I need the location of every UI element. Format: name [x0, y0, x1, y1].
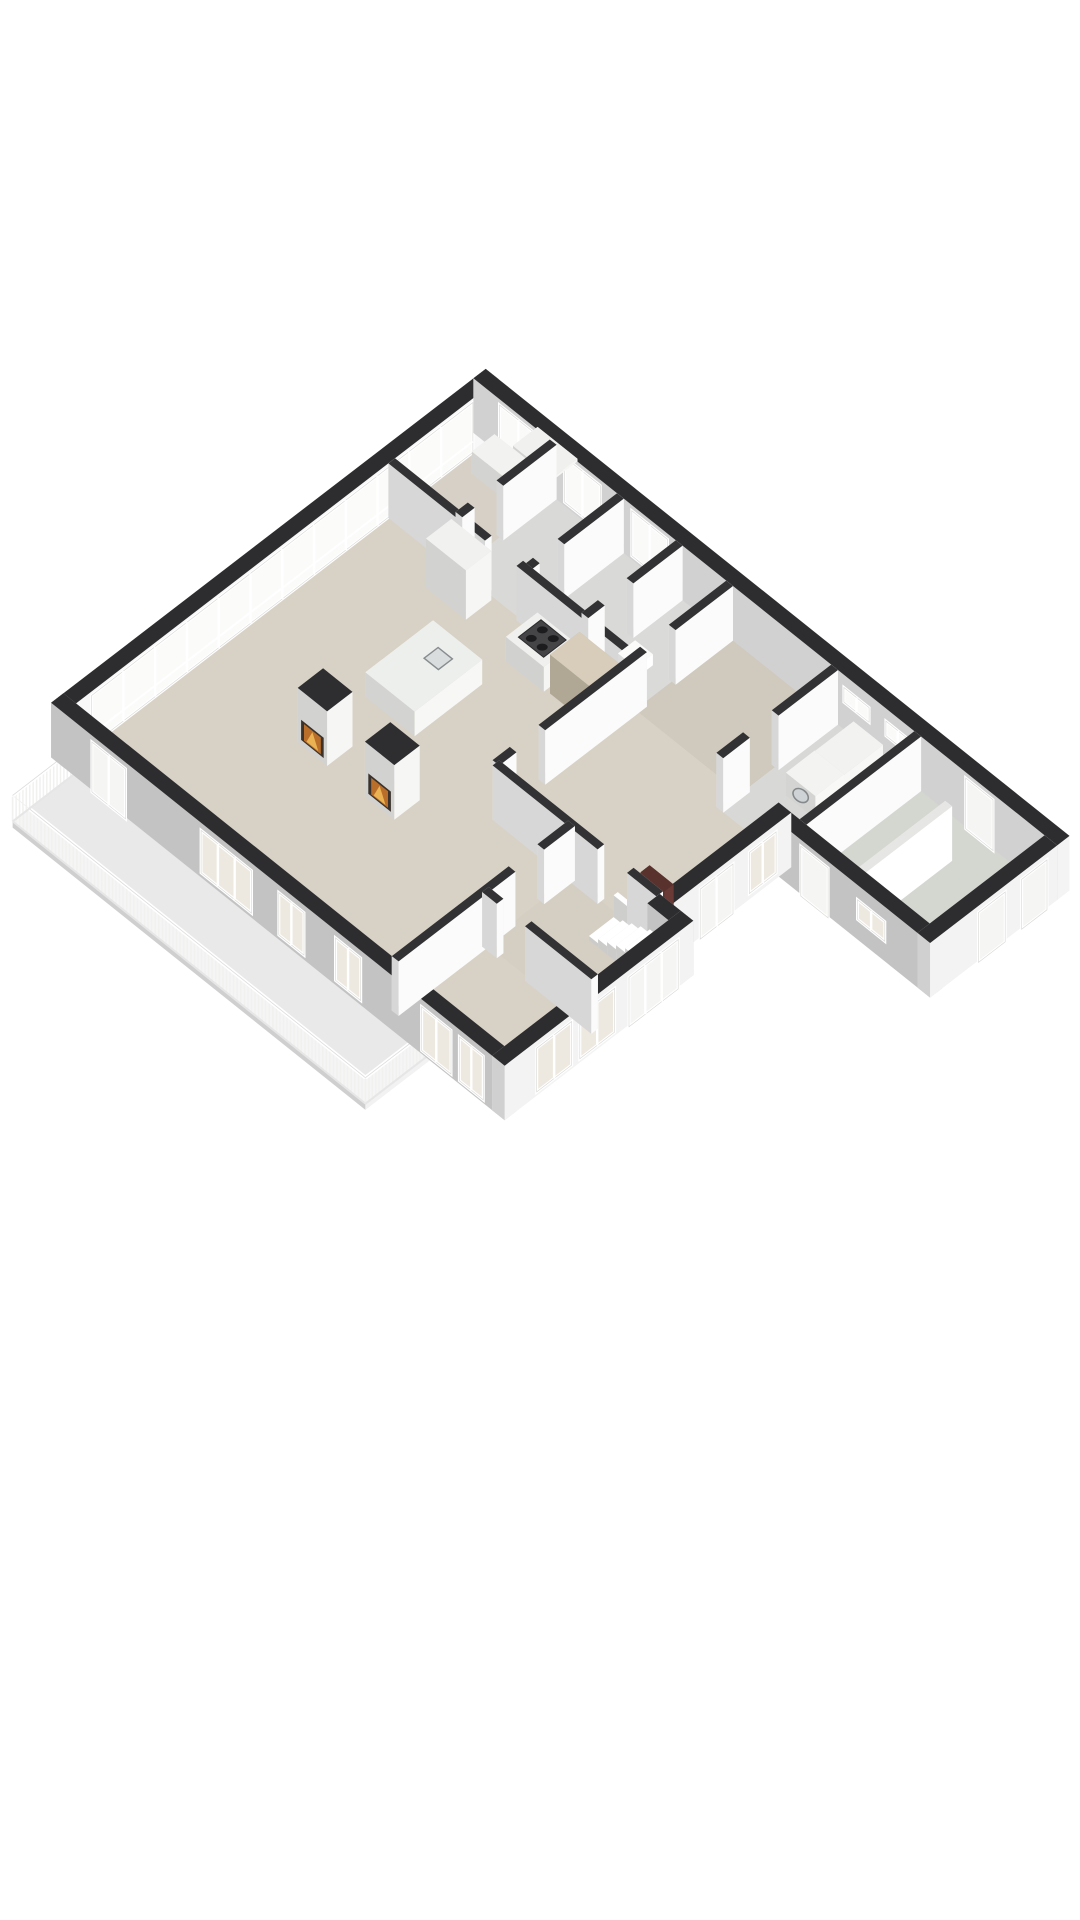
wall-bedroom-left-a	[482, 887, 503, 958]
floor-plan-3d-render	[0, 0, 1080, 1920]
floor-plan-viewer	[0, 0, 1080, 1920]
